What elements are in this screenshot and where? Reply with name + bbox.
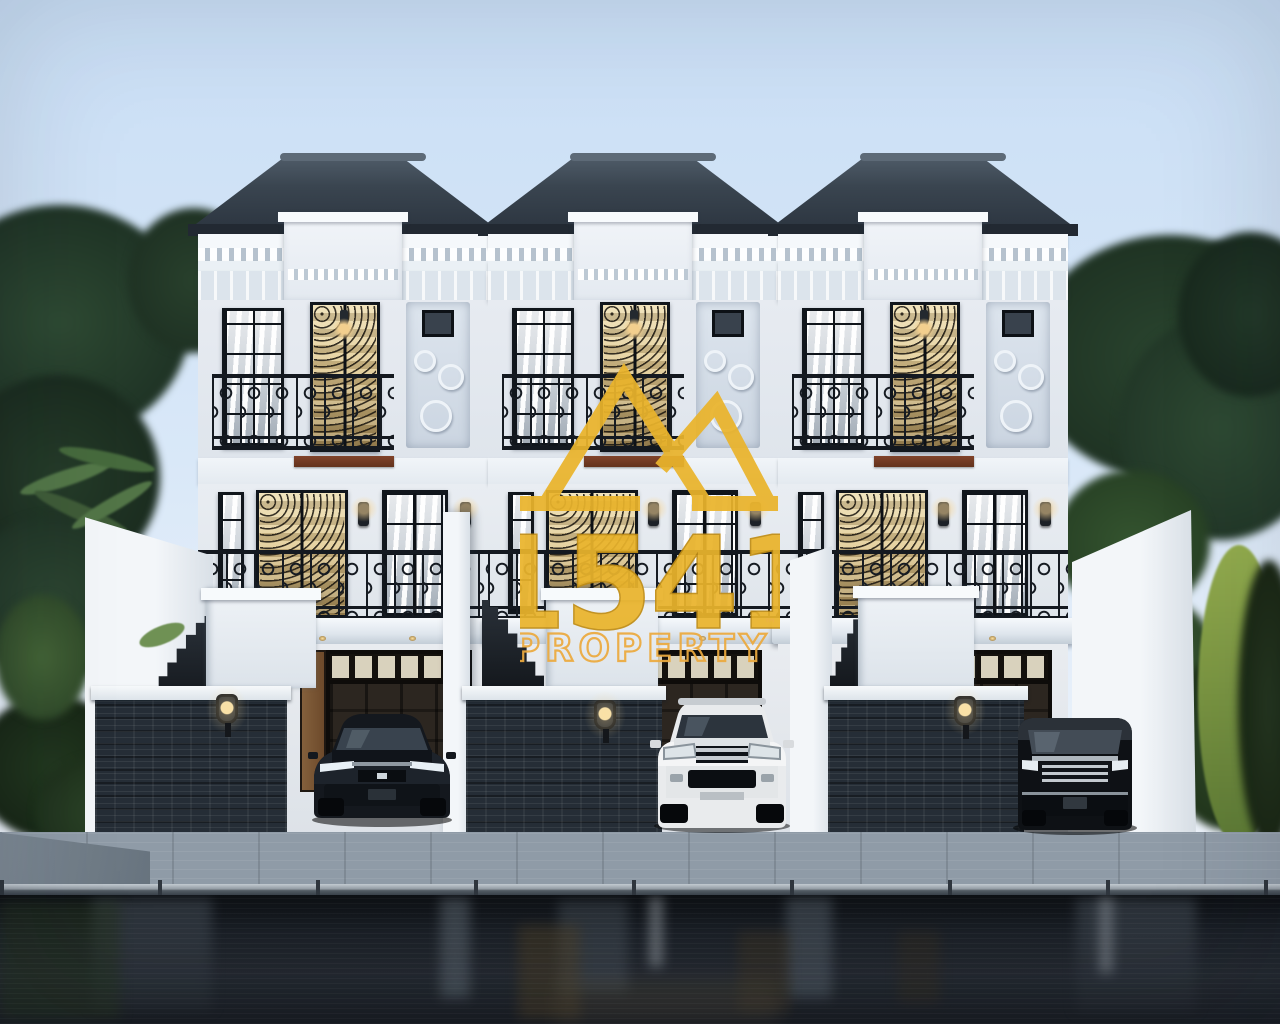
trademark-symbol: ™	[764, 617, 777, 632]
juliet-railing	[792, 374, 974, 450]
downlight-icon	[989, 636, 996, 641]
bright-reflection	[1100, 897, 1112, 973]
fence-lamp-icon	[954, 696, 976, 726]
downlight-icon	[319, 636, 326, 641]
wet-asphalt-street	[0, 895, 1280, 1024]
portico	[574, 212, 692, 304]
green-reflection	[0, 901, 120, 1019]
portico	[864, 212, 982, 304]
reflection	[786, 898, 832, 998]
timber-accent	[294, 456, 394, 467]
brand-watermark: 1541 PROPERTY ™	[520, 360, 780, 672]
carved-relief-panel	[406, 302, 470, 448]
timber-accent	[874, 456, 974, 467]
juliet-railing	[212, 374, 394, 450]
downlight-icon	[409, 636, 416, 641]
logo-eave-bar	[520, 496, 640, 511]
roof-ridge	[280, 153, 426, 161]
black-mpv	[1008, 690, 1142, 836]
stone-fence	[95, 700, 287, 834]
scroll-ornament	[994, 350, 1016, 372]
reflection	[92, 899, 212, 1009]
stair-parapet	[858, 586, 974, 688]
attic-window	[712, 310, 744, 337]
stair-parapet	[206, 588, 316, 688]
roof-ridge	[570, 153, 716, 161]
wall-sconce-icon	[938, 502, 949, 526]
scroll-ornament	[414, 350, 436, 372]
reflection	[1076, 899, 1196, 1011]
white-suv	[648, 682, 796, 834]
black-sedan	[306, 692, 458, 828]
stone-fence	[828, 700, 1024, 834]
porch-lantern-icon	[630, 310, 638, 324]
reflection	[558, 901, 628, 993]
reflection	[440, 898, 470, 998]
brand-word: PROPERTY	[520, 627, 771, 670]
bright-reflection	[650, 897, 662, 967]
porch-lantern-icon	[920, 310, 928, 324]
warm-reflection	[898, 931, 940, 1003]
fence-lamp-icon	[216, 694, 238, 724]
light-pool	[555, 979, 780, 1023]
carved-relief-panel	[986, 302, 1050, 448]
scroll-ornament	[438, 364, 464, 390]
street-curb	[0, 884, 1280, 895]
logo-rooflines	[545, 377, 768, 505]
warm-reflection	[518, 925, 580, 1019]
scroll-ornament	[1000, 400, 1032, 432]
wall-sconce-icon	[1040, 502, 1051, 526]
warm-reflection	[738, 931, 790, 1011]
roof-ridge	[860, 153, 1006, 161]
portico	[284, 212, 402, 304]
attic-window	[422, 310, 454, 337]
scroll-ornament	[1018, 364, 1044, 390]
architectural-render: 1541 PROPERTY ™	[0, 0, 1280, 1024]
logo-eave-bar	[692, 496, 778, 511]
attic-window	[1002, 310, 1034, 337]
scroll-ornament	[420, 400, 452, 432]
fence-lamp-icon	[594, 700, 616, 730]
stone-fence	[466, 700, 662, 834]
wall-sconce-icon	[358, 502, 369, 526]
porch-lantern-icon	[340, 310, 348, 324]
